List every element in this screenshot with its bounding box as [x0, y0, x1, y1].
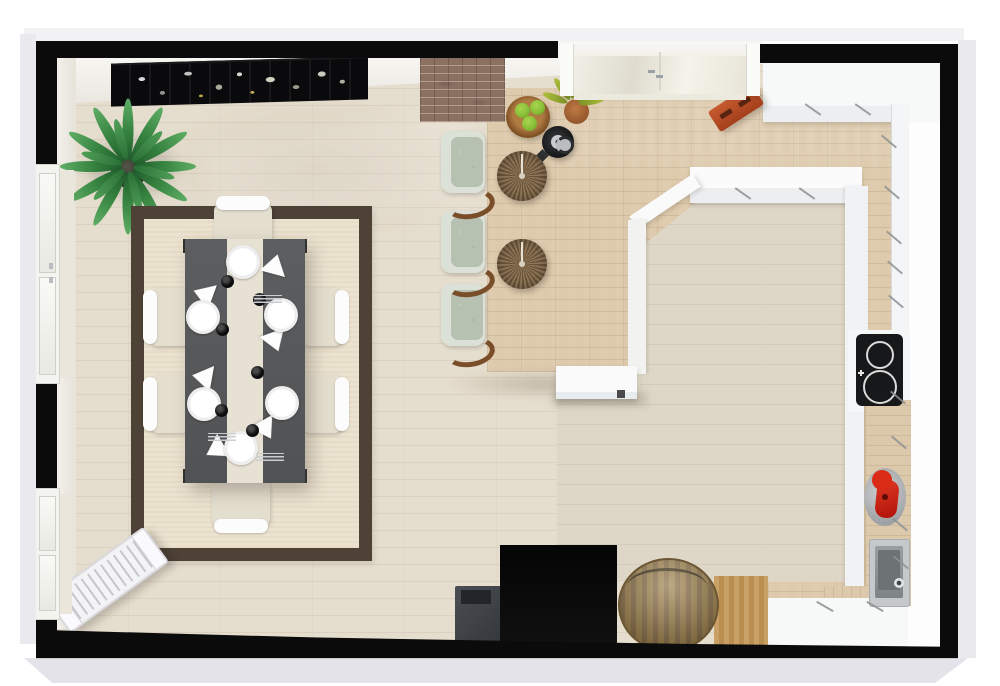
cutlery-set: [254, 295, 282, 303]
cutlery-set: [208, 433, 236, 441]
window-pane: [39, 555, 56, 611]
peninsula-counter: [690, 167, 862, 203]
kettle-handle: [556, 136, 574, 154]
counter-chair: [441, 211, 485, 273]
barrel-table: [618, 558, 719, 652]
left-wall-middle-segment: [36, 382, 57, 488]
double-glass-door: [560, 44, 760, 96]
window-handle: [49, 263, 53, 269]
plate: [264, 298, 298, 332]
cup: [216, 323, 229, 336]
kitchen-sink: [869, 539, 910, 607]
left-wall-upper-segment: [36, 40, 57, 164]
window-handle: [49, 277, 53, 283]
plate: [187, 387, 221, 421]
plate: [265, 386, 299, 420]
cutlery-set: [256, 453, 284, 461]
door-panel-divider: [659, 52, 661, 90]
fruit-bowl: [506, 96, 550, 138]
window-sill: [58, 494, 72, 614]
cabinet-foot: [617, 390, 625, 398]
plate: [186, 300, 220, 334]
window-sill: [58, 170, 74, 378]
right-wall: [940, 44, 958, 662]
step-slot: [719, 108, 733, 119]
window-pane: [39, 496, 56, 551]
cup: [251, 366, 264, 379]
waste-bin: [455, 586, 501, 646]
window-upper-left: [34, 164, 60, 384]
dining-chair: [302, 375, 342, 433]
kettle: [542, 126, 574, 158]
bar-end-cabinet: [556, 366, 637, 399]
cup: [221, 275, 234, 288]
window-pane: [39, 173, 56, 273]
outer-wall-band-right: [958, 40, 976, 658]
green-apple: [522, 116, 537, 131]
window-pane: [39, 277, 56, 375]
cup: [215, 404, 228, 417]
top-wall-counter-front: [763, 106, 897, 122]
window-lower-left: [34, 488, 60, 620]
cup: [246, 424, 259, 437]
bin-opening: [461, 590, 491, 604]
chair-seat: [451, 290, 483, 340]
dining-chair: [302, 288, 342, 346]
door-handle: [648, 70, 655, 73]
chair-seat: [451, 217, 483, 267]
dining-chair: [212, 480, 270, 526]
city-wall-picture: [111, 56, 368, 106]
outer-wall-band-bottom: [24, 656, 968, 683]
plate: [226, 245, 260, 279]
brick-wall-section: [420, 58, 505, 122]
top-wall-right-segment: [760, 44, 958, 63]
floor-plan-canvas: [0, 0, 1000, 686]
burner-small: [866, 341, 894, 369]
door-jamb: [746, 44, 760, 96]
top-wall-left-segment: [32, 40, 563, 58]
door-handle: [656, 75, 663, 78]
top-wall-counter: [763, 58, 942, 122]
mixer-head: [872, 470, 892, 490]
peninsula-counter-left-edge: [628, 220, 646, 374]
stand-mixer: [864, 466, 910, 530]
dining-chair: [150, 288, 190, 346]
counter-chair: [441, 131, 485, 193]
black-cabinet: [500, 545, 617, 645]
wood-cabinet-panel: [714, 576, 768, 646]
bar-stool: [497, 151, 547, 201]
green-apple: [530, 100, 545, 115]
right-wall-inner-face: [906, 58, 942, 650]
burner-large: [863, 370, 897, 404]
outer-wall-band-top: [24, 28, 964, 41]
faucet: [894, 578, 904, 588]
mixer-bowl: [882, 494, 888, 500]
outer-wall-band-left: [20, 34, 36, 644]
bar-stool: [497, 239, 547, 289]
chair-seat: [451, 137, 483, 187]
door-jamb: [560, 44, 574, 96]
cooktop-control: [860, 370, 862, 376]
dining-chair: [150, 375, 190, 433]
